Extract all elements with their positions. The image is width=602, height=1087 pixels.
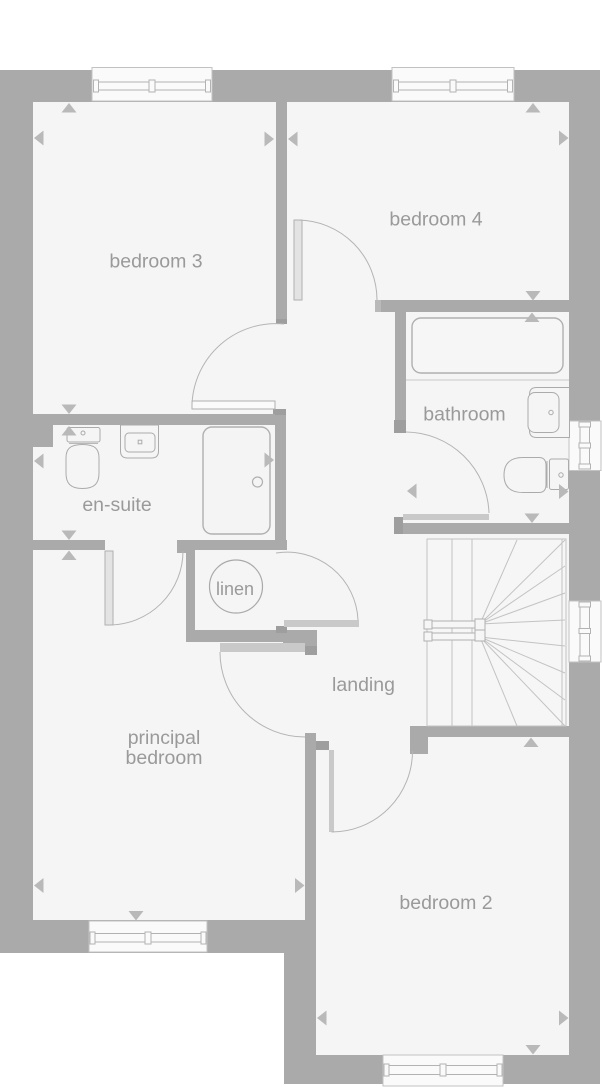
svg-text:en-suite: en-suite bbox=[82, 494, 151, 516]
svg-text:principal: principal bbox=[128, 727, 201, 749]
svg-text:landing: landing bbox=[332, 674, 395, 696]
svg-text:bedroom 3: bedroom 3 bbox=[109, 251, 202, 273]
svg-text:bedroom 2: bedroom 2 bbox=[399, 892, 492, 914]
svg-text:bedroom: bedroom bbox=[126, 747, 203, 769]
svg-text:bedroom 4: bedroom 4 bbox=[389, 209, 482, 231]
svg-text:linen: linen bbox=[216, 579, 254, 599]
svg-text:bathroom: bathroom bbox=[423, 404, 505, 426]
